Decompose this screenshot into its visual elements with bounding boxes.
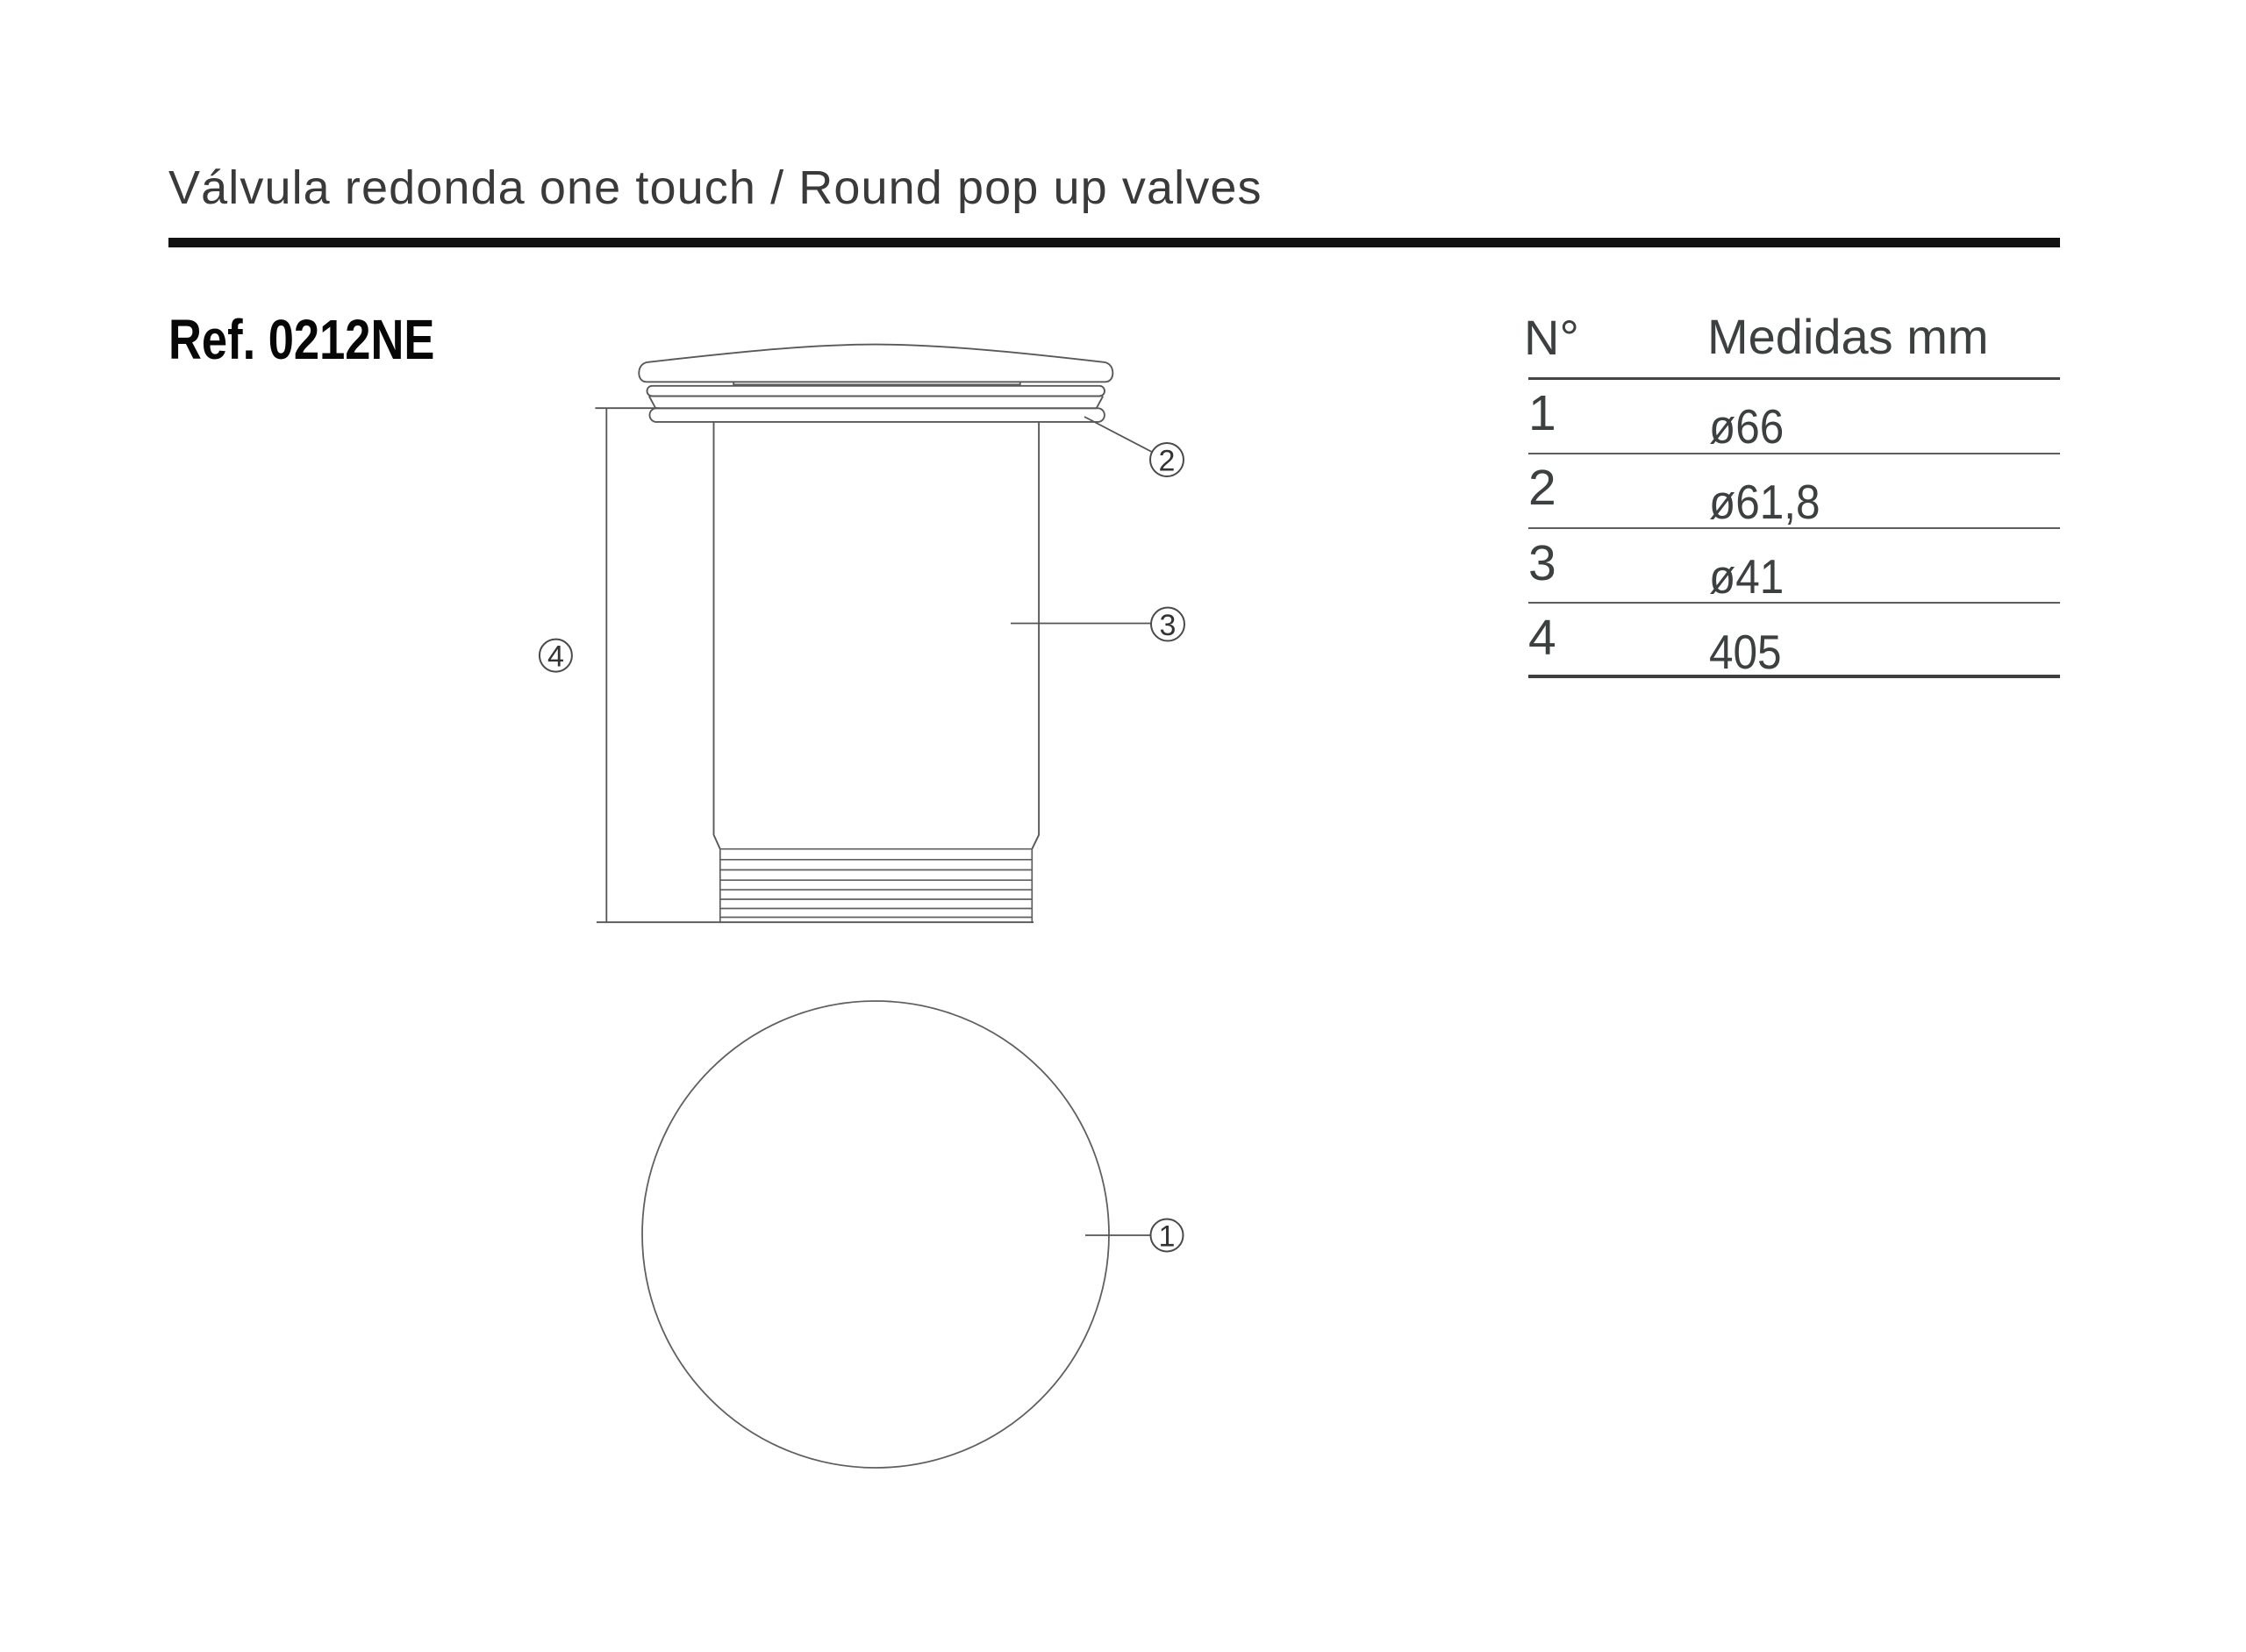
svg-text:3: 3 xyxy=(1160,609,1177,642)
svg-text:4: 4 xyxy=(547,640,564,674)
svg-text:1: 1 xyxy=(1159,1220,1176,1254)
svg-text:2: 2 xyxy=(1159,445,1176,478)
